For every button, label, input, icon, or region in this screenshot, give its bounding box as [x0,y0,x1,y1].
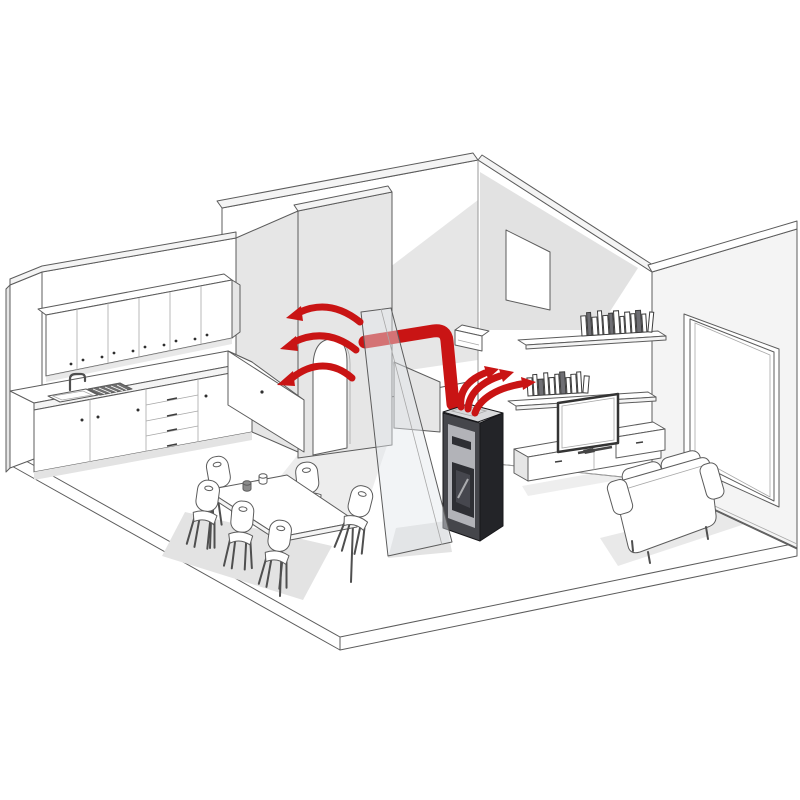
cup [243,481,251,491]
arched-doorway [313,339,347,455]
cup [259,474,267,484]
tv [558,394,618,454]
cabinet-handle [636,442,643,443]
pellet-stove [443,404,503,541]
wall-outer-strip [6,285,10,472]
stove-side [480,413,503,541]
return-handle [260,390,263,393]
apartment-cutaway-svg [0,0,800,800]
drawer-handle [555,461,562,462]
books-row [527,370,591,396]
tv-screen [558,394,618,452]
isometric-apartment-diagram [0,0,800,800]
cabinet-end [232,280,240,338]
